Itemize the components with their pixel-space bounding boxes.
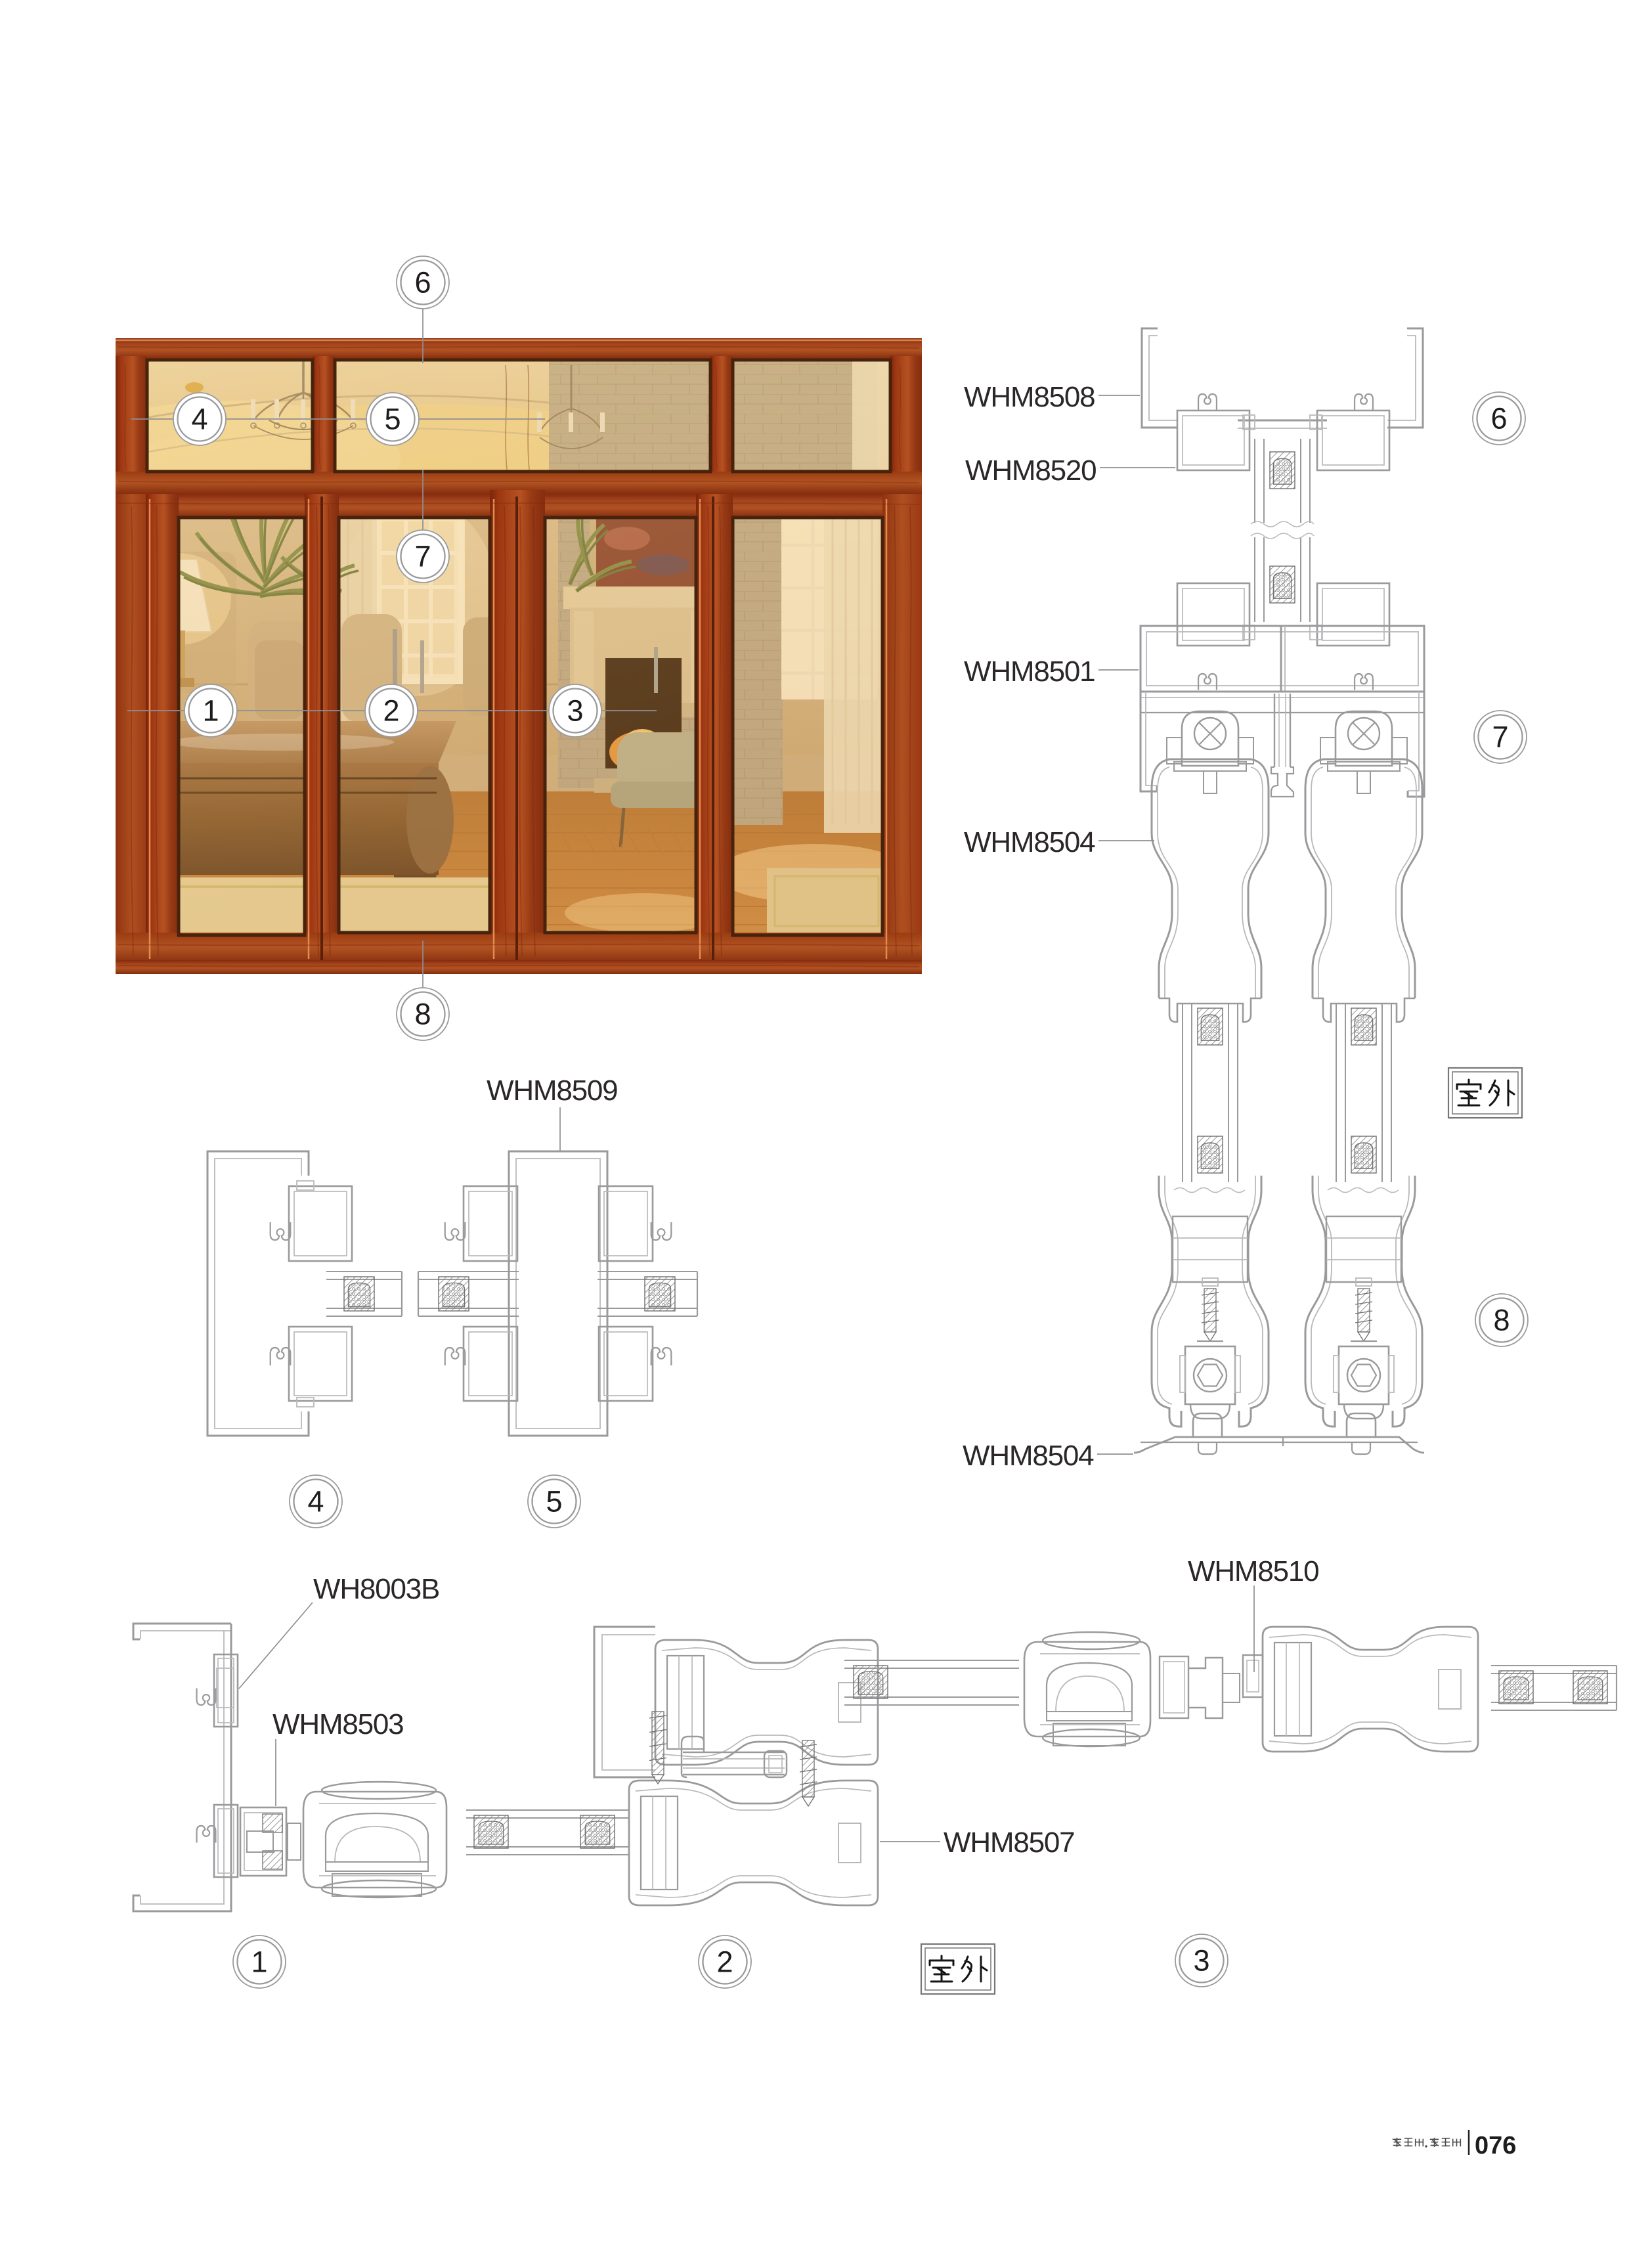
svg-text:WHM8510: WHM8510 <box>1188 1555 1318 1587</box>
svg-text:7: 7 <box>414 540 431 573</box>
svg-text:3: 3 <box>567 694 583 728</box>
svg-text:6: 6 <box>1490 402 1507 435</box>
svg-text:2: 2 <box>716 1945 733 1979</box>
svg-text:7: 7 <box>1492 720 1508 754</box>
svg-text:3: 3 <box>1193 1944 1209 1978</box>
svg-text:WHM8507: WHM8507 <box>944 1826 1074 1859</box>
svg-text:WHM8503: WHM8503 <box>272 1708 403 1740</box>
svg-text:8: 8 <box>414 998 431 1031</box>
svg-text:WHM8504: WHM8504 <box>964 826 1095 858</box>
svg-text:5: 5 <box>384 403 401 436</box>
svg-text:WH8003B: WH8003B <box>313 1573 439 1605</box>
svg-text:WHM8509: WHM8509 <box>487 1074 617 1107</box>
svg-text:8: 8 <box>1493 1304 1510 1337</box>
svg-text:WHM8504: WHM8504 <box>963 1440 1094 1472</box>
svg-text:076: 076 <box>1475 2132 1516 2159</box>
svg-text:4: 4 <box>307 1485 324 1518</box>
svg-text:WHM8501: WHM8501 <box>964 655 1095 688</box>
svg-text:WHM8508: WHM8508 <box>964 381 1095 413</box>
svg-text:1: 1 <box>251 1945 267 1979</box>
svg-text:4: 4 <box>191 403 207 436</box>
svg-text:5: 5 <box>546 1485 562 1518</box>
svg-text:2: 2 <box>383 694 399 728</box>
svg-text:1: 1 <box>202 694 219 728</box>
svg-text:WHM8520: WHM8520 <box>965 454 1096 487</box>
svg-text:6: 6 <box>414 266 431 299</box>
